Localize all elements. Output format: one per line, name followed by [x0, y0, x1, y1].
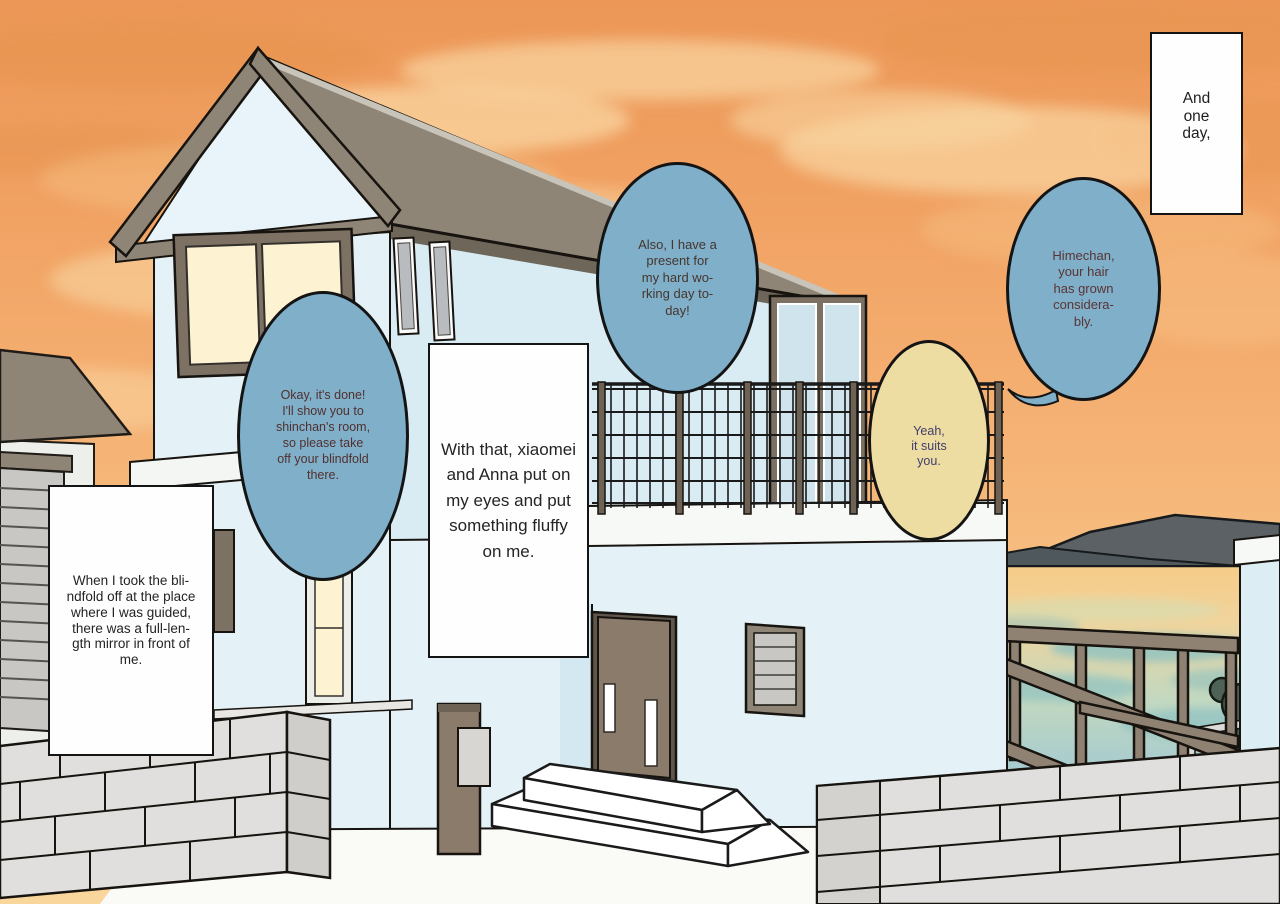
caption-box-and-one-day: And one day,	[1150, 32, 1243, 215]
speech-bubble-blindfold: Okay, it's done! I'll show you to shinch…	[237, 291, 409, 581]
comic-page: And one day, With that, xiaomei and Anna…	[0, 0, 1280, 904]
caption-text-and-one-day: And one day,	[1182, 90, 1210, 144]
louver-window	[746, 624, 804, 716]
front-door	[592, 612, 676, 784]
speech-text-blindfold: Okay, it's done! I'll show you to shinch…	[276, 388, 370, 483]
scene-illustration	[0, 0, 1280, 904]
speech-text-suits-you: Yeah, it suits you.	[911, 424, 946, 468]
narrow-window-1	[394, 238, 419, 335]
dark-window	[214, 530, 234, 632]
speech-text-hair-grown: Himechan, your hair has grown considera-…	[1052, 248, 1114, 331]
caption-text-with-that: With that, xiaomei and Anna put on my ey…	[441, 437, 576, 565]
caption-box-with-that: With that, xiaomei and Anna put on my ey…	[428, 343, 589, 658]
speech-bubble-hair-grown: Himechan, your hair has grown considera-…	[1006, 177, 1161, 401]
speech-bubble-present: Also, I have a present for my hard wo- r…	[596, 162, 759, 394]
speech-text-present: Also, I have a present for my hard wo- r…	[638, 237, 717, 320]
speech-bubble-suits-you: Yeah, it suits you.	[868, 340, 990, 541]
caption-box-when-i-took: When I took the bli- ndfold off at the p…	[48, 485, 214, 756]
caption-text-when-i-took: When I took the bli- ndfold off at the p…	[67, 573, 196, 669]
narrow-window-2	[429, 242, 454, 341]
